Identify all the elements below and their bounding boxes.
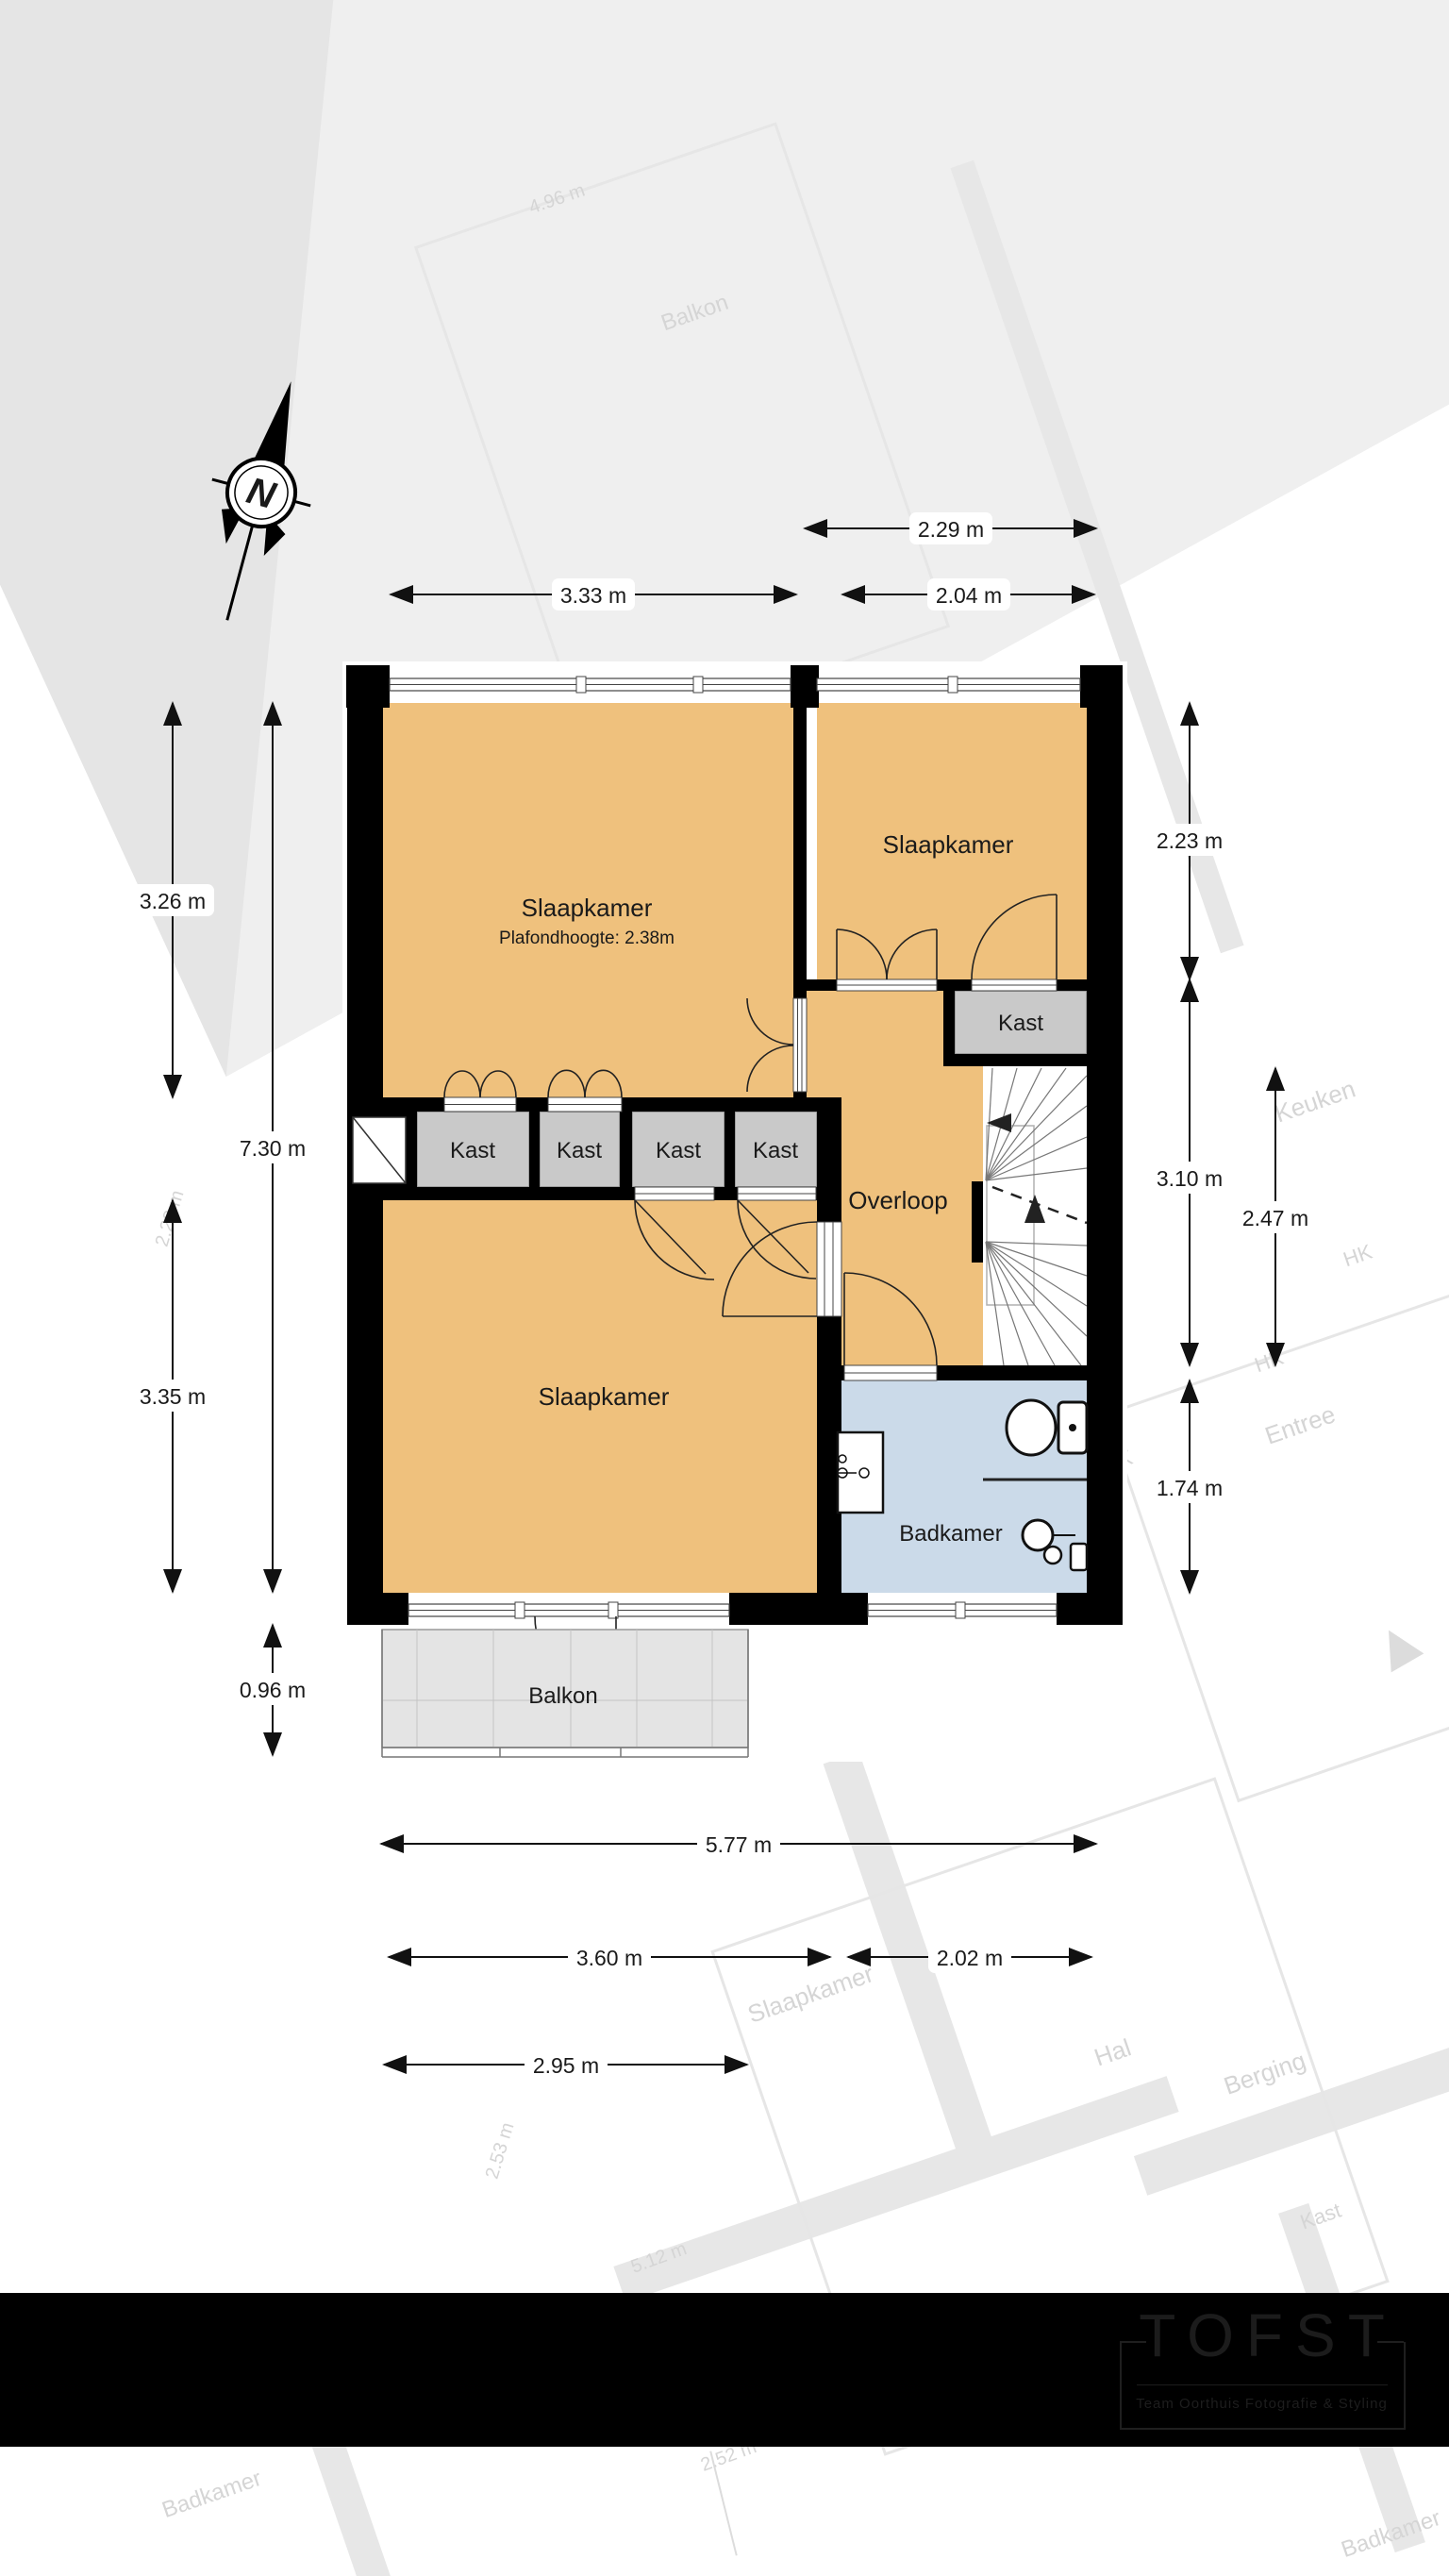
dimension-bottom-577: 5.77 m	[381, 1828, 1096, 1860]
svg-text:5.77 m: 5.77 m	[706, 1832, 772, 1857]
label-bedroom-bottom: Slaapkamer	[539, 1382, 670, 1411]
dimension-top-204: 2.04 m	[842, 578, 1094, 611]
wall-niche	[353, 1117, 406, 1183]
label-bathroom: Badkamer	[899, 1521, 1002, 1547]
svg-text:2.29 m: 2.29 m	[918, 517, 984, 542]
shower-head-icon	[1023, 1520, 1053, 1550]
label-closet-top-right: Kast	[998, 1011, 1043, 1036]
floorplan-page: 4.96 m Balkon 2.23 m Keuken HK HK HK Ent…	[0, 0, 1449, 2576]
tofst-logo-subtitle: Team Oorthuis Fotografie & Styling	[1120, 2396, 1404, 2412]
compass-north-icon: N	[178, 368, 341, 633]
dimension-left-096: 0.96 m	[231, 1625, 314, 1755]
svg-text:2.04 m: 2.04 m	[936, 583, 1002, 608]
dimension-left-326: 3.26 m	[131, 703, 214, 1097]
toilet-bowl-icon	[1007, 1400, 1056, 1455]
svg-text:3.35 m: 3.35 m	[140, 1384, 206, 1409]
svg-text:7.30 m: 7.30 m	[240, 1136, 306, 1161]
svg-text:2.02 m: 2.02 m	[937, 1946, 1003, 1970]
dimension-right-310: 3.10 m	[1148, 979, 1231, 1365]
svg-text:3.10 m: 3.10 m	[1157, 1166, 1223, 1191]
dimension-top-229: 2.29 m	[805, 512, 1096, 544]
tofst-logo-rule	[1137, 2384, 1388, 2385]
label-balcony: Balkon	[528, 1683, 597, 1709]
svg-text:3.33 m: 3.33 m	[560, 583, 626, 608]
label-bedroom-top-right: Slaapkamer	[883, 830, 1014, 859]
floorplan-svg: Slaapkamer Plafondhoogte: 2.38m Slaapkam…	[0, 0, 1449, 2576]
svg-text:0.96 m: 0.96 m	[240, 1678, 306, 1702]
dimension-left-730: 7.30 m	[231, 703, 314, 1592]
dimension-bottom-295: 2.95 m	[384, 2049, 747, 2081]
svg-text:3.26 m: 3.26 m	[140, 889, 206, 913]
label-closet-3: Kast	[656, 1138, 701, 1163]
dimension-left-335: 3.35 m	[131, 1200, 214, 1592]
svg-text:2.23 m: 2.23 m	[1157, 828, 1223, 853]
svg-text:2.95 m: 2.95 m	[533, 2053, 599, 2078]
label-closet-1: Kast	[450, 1138, 495, 1163]
label-closet-2: Kast	[557, 1138, 602, 1163]
dimension-right-174: 1.74 m	[1148, 1380, 1231, 1593]
dimension-right-223: 2.23 m	[1148, 703, 1231, 979]
svg-text:1.74 m: 1.74 m	[1157, 1476, 1223, 1500]
dimension-right-247: 2.47 m	[1234, 1068, 1317, 1365]
label-closet-4: Kast	[753, 1138, 798, 1163]
tofst-logo-title: TOFST	[1120, 2300, 1404, 2370]
label-landing: Overloop	[848, 1186, 948, 1214]
svg-text:2.47 m: 2.47 m	[1242, 1206, 1308, 1230]
dimension-bottom-202: 2.02 m	[848, 1941, 1091, 1973]
dimension-bottom-360: 3.60 m	[389, 1941, 830, 1973]
dimension-top-333: 3.33 m	[391, 578, 796, 611]
svg-text:3.60 m: 3.60 m	[576, 1946, 642, 1970]
label-ceiling-height: Plafondhoogte: 2.38m	[499, 928, 675, 948]
label-bedroom-top-left: Slaapkamer	[522, 894, 653, 922]
